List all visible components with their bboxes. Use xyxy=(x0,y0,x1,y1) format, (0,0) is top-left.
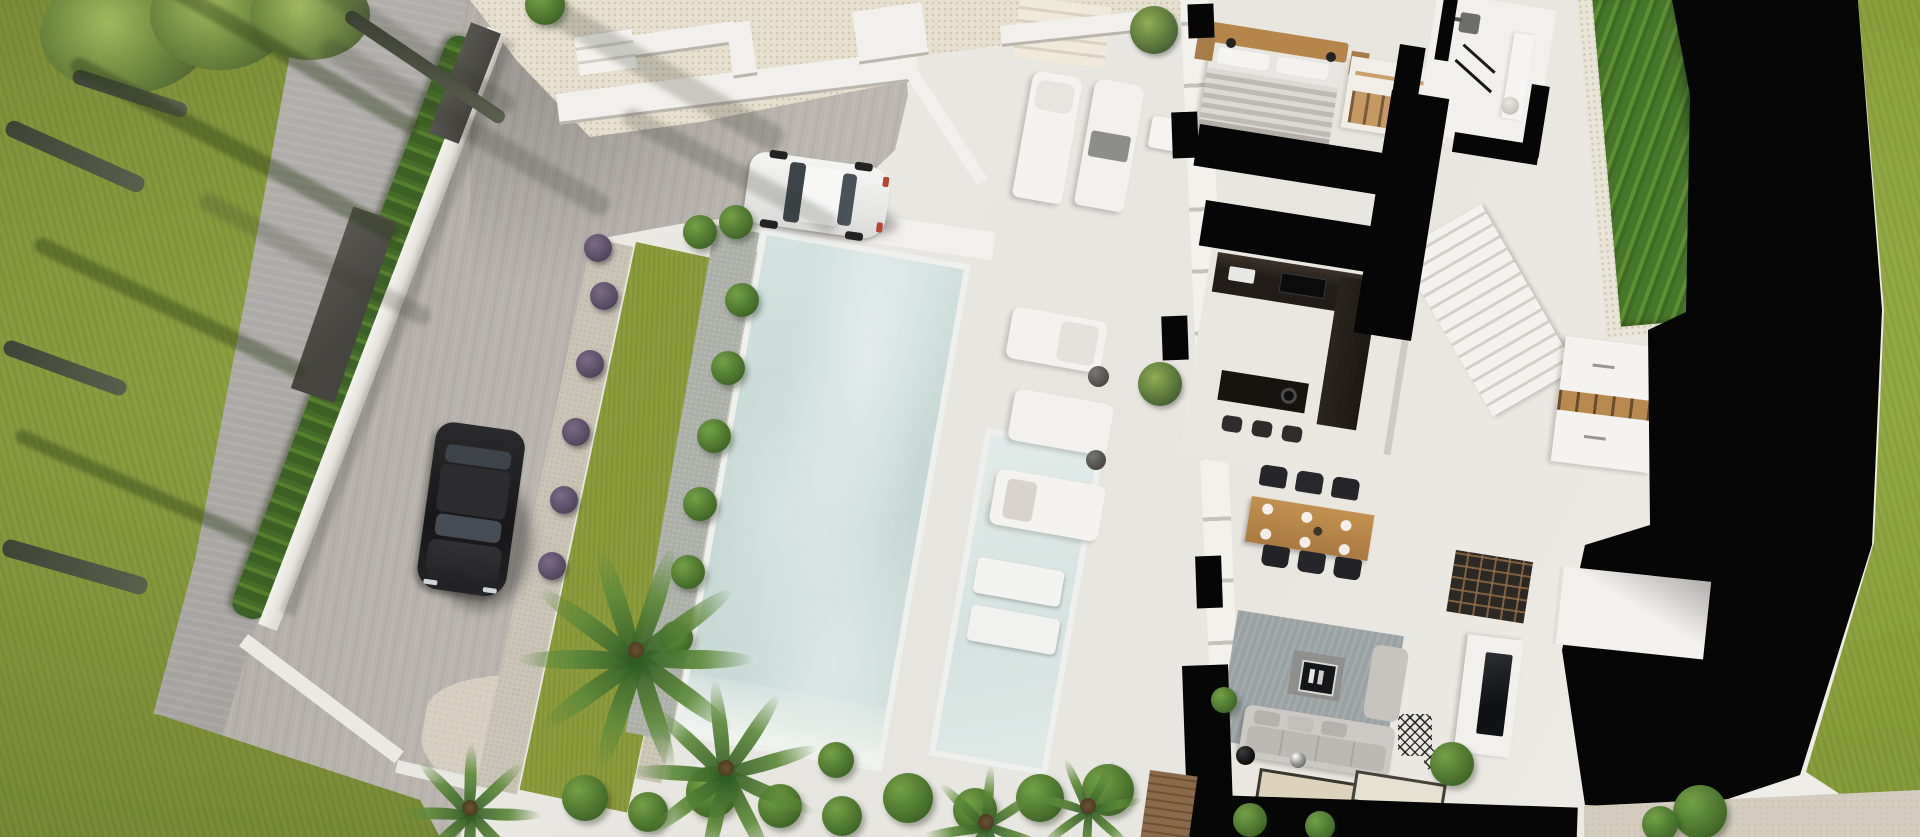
garden-bush-green-1 xyxy=(725,283,759,317)
potted-plant-1 xyxy=(1130,6,1178,54)
road-shadow-3 xyxy=(196,190,434,328)
palm-crown-center xyxy=(462,800,478,816)
tree-trunk-2 xyxy=(3,118,147,195)
palm-crown-center xyxy=(628,642,644,658)
garden-bush-purple-5 xyxy=(538,552,566,580)
garden-bush-purple-2 xyxy=(576,350,604,378)
tree-trunk-3 xyxy=(1,338,129,397)
garden-bush-green-4 xyxy=(683,487,717,521)
garden-bush-green-8 xyxy=(719,205,753,239)
villa-aerial-render xyxy=(0,0,1920,837)
bush-6 xyxy=(883,773,933,823)
bush-10 xyxy=(818,742,854,778)
garden-bush-green-3 xyxy=(697,419,731,453)
garden-bush-green-5 xyxy=(671,555,705,589)
vegetation-layer xyxy=(0,0,1920,837)
road-shadow-2 xyxy=(317,35,614,219)
tree-trunk-4 xyxy=(0,538,149,597)
bush-14 xyxy=(1642,806,1678,837)
garden-bush-purple-6 xyxy=(584,234,612,262)
palm-crown-center xyxy=(978,814,994,830)
lawn-shadow-3 xyxy=(32,235,309,381)
garden-bush-purple-3 xyxy=(562,418,590,446)
potted-plant-2 xyxy=(1138,362,1182,406)
bush-15 xyxy=(1430,742,1474,786)
bush-16 xyxy=(1211,687,1237,713)
palm-crown-center xyxy=(718,760,734,776)
garden-bush-green-7 xyxy=(683,215,717,249)
lawn-shadow-4 xyxy=(13,428,256,547)
bush-12 xyxy=(1305,811,1335,837)
bush-13 xyxy=(1673,785,1727,837)
palm-crown-center xyxy=(1080,798,1096,814)
garden-bush-green-2 xyxy=(711,351,745,385)
garden-bush-purple-1 xyxy=(590,282,618,310)
bush-11 xyxy=(1233,803,1267,837)
bush-5 xyxy=(822,796,862,836)
garden-bush-purple-4 xyxy=(550,486,578,514)
bush-1 xyxy=(562,775,608,821)
